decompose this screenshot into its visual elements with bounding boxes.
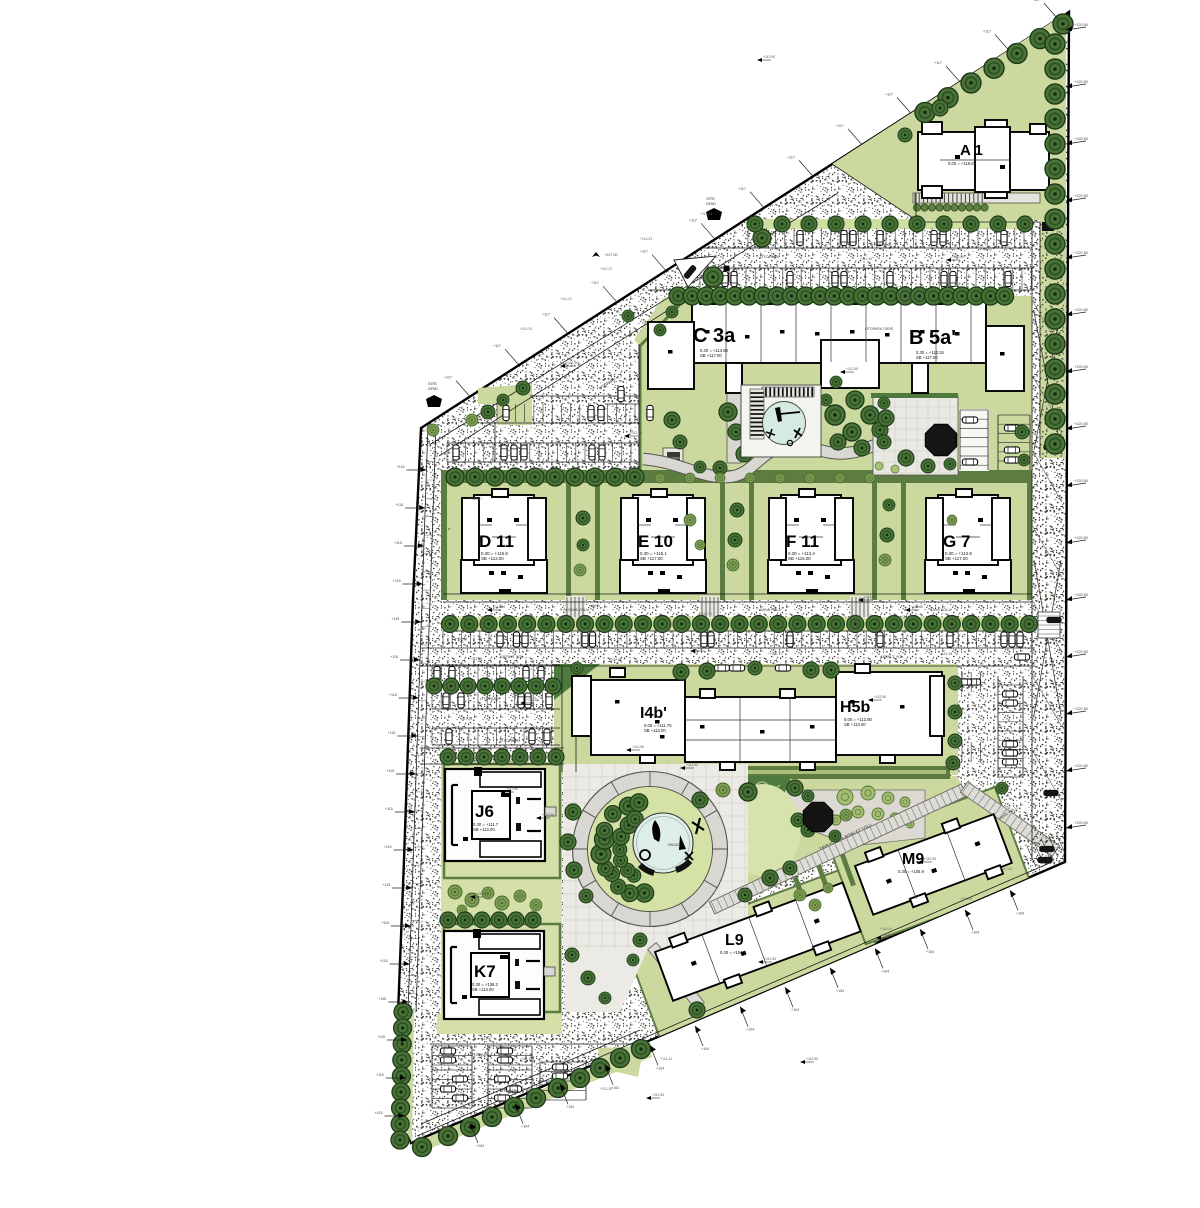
- svg-text:+120.50: +120.50: [1074, 422, 1088, 426]
- svg-text:+104: +104: [476, 1144, 484, 1148]
- svg-text:+115.41: +115.41: [880, 927, 892, 931]
- svg-text:+104: +104: [1016, 911, 1024, 915]
- svg-text:+112.50: +112.50: [630, 431, 642, 435]
- svg-text:+120.50: +120.50: [1074, 23, 1088, 27]
- svg-text:+112.50: +112.50: [493, 605, 505, 609]
- svg-text:+120.50: +120.50: [1074, 137, 1088, 141]
- svg-text:+115: +115: [382, 883, 390, 887]
- svg-text:SB +113.00: SB +113.00: [473, 827, 495, 832]
- svg-text:L9: L9: [725, 932, 744, 949]
- svg-text:+115: +115: [388, 731, 396, 735]
- svg-text:+114.24: +114.24: [700, 212, 712, 216]
- svg-text:+120.50: +120.50: [1074, 479, 1088, 483]
- svg-text:+117.00: +117.00: [604, 253, 618, 257]
- svg-text:+112.50: +112.50: [911, 605, 923, 609]
- svg-text:OTOPARK: OTOPARK: [470, 1052, 490, 1057]
- svg-text:YAYA YOLU: YAYA YOLU: [930, 607, 952, 612]
- svg-text:+112.50: +112.50: [882, 933, 894, 937]
- svg-text:+120.50: +120.50: [1074, 536, 1088, 540]
- svg-text:+111.45: +111.45: [980, 247, 992, 251]
- svg-text:+110.36: +110.36: [520, 757, 532, 761]
- svg-text:+115: +115: [386, 769, 394, 773]
- svg-text:+115.33: +115.33: [770, 652, 782, 656]
- svg-text:SB +112.00: SB +112.00: [481, 556, 504, 561]
- svg-text:SB +113.00: SB +113.00: [844, 722, 866, 727]
- svg-text:+120.50: +120.50: [1074, 650, 1088, 654]
- svg-text:+110.28: +110.28: [455, 637, 467, 641]
- svg-text:SB +117.00: SB +117.00: [945, 556, 968, 561]
- svg-text:+115: +115: [390, 655, 398, 659]
- svg-text:+104: +104: [521, 1125, 529, 1129]
- svg-text:ASFALT YOL: ASFALT YOL: [880, 654, 904, 659]
- svg-text:YAYA YOLU: YAYA YOLU: [760, 607, 782, 612]
- svg-text:SB +117.00: SB +117.00: [700, 353, 722, 358]
- svg-text:+112.50: +112.50: [566, 361, 578, 365]
- svg-text:F 11: F 11: [786, 532, 819, 551]
- svg-text:YAYA: YAYA: [590, 603, 600, 608]
- svg-text:+112.50: +112.50: [686, 763, 698, 767]
- svg-text:OTOPARK: OTOPARK: [500, 738, 520, 743]
- svg-text:OTOPARK: OTOPARK: [760, 254, 780, 259]
- svg-text:+117: +117: [787, 155, 795, 159]
- svg-text:+114.40: +114.40: [660, 1057, 672, 1061]
- svg-text:+117: +117: [738, 187, 746, 191]
- svg-text:+110.44: +110.44: [940, 247, 952, 251]
- svg-text:d: d: [448, 526, 450, 531]
- svg-text:M9: M9: [902, 851, 924, 868]
- svg-text:+112.50: +112.50: [526, 698, 538, 702]
- svg-text:SB +113.00: SB +113.00: [472, 987, 494, 992]
- svg-text:+112.46: +112.46: [860, 257, 872, 261]
- svg-text:+115.49: +115.49: [900, 297, 912, 301]
- svg-text:+117: +117: [983, 30, 991, 34]
- svg-text:+115: +115: [384, 845, 392, 849]
- svg-text:+112.50: +112.50: [874, 695, 886, 699]
- svg-text:+113.31: +113.31: [700, 612, 712, 616]
- svg-text:0.30 = +105.9: 0.30 = +105.9: [898, 869, 925, 874]
- svg-text:0.30 = +104.5: 0.30 = +104.5: [720, 950, 747, 955]
- svg-text:+115: +115: [380, 959, 388, 963]
- svg-text:+115.25: +115.25: [620, 467, 632, 471]
- svg-text:+120.50: +120.50: [1074, 707, 1088, 711]
- svg-text:+112.50: +112.50: [696, 646, 708, 650]
- svg-text:+120.50: +120.50: [1074, 593, 1088, 597]
- svg-text:+115: +115: [381, 921, 389, 925]
- svg-text:+112.30: +112.30: [900, 615, 912, 619]
- svg-text:+120.50: +120.50: [1074, 365, 1088, 369]
- svg-text:+120.50: +120.50: [1074, 821, 1088, 825]
- svg-text:+117: +117: [640, 250, 648, 254]
- svg-text:OTOPARK: OTOPARK: [870, 242, 890, 247]
- svg-text:ASFALT YOL: ASFALT YOL: [500, 654, 524, 659]
- svg-text:SB +113.00: SB +113.00: [644, 728, 666, 733]
- svg-text:SB +116.00: SB +116.00: [788, 556, 811, 561]
- svg-text:+115: +115: [397, 465, 405, 469]
- svg-text:+114.32: +114.32: [610, 657, 622, 661]
- svg-text:+110.20: +110.20: [520, 327, 532, 331]
- svg-text:I4b': I4b': [640, 705, 667, 722]
- svg-text:+117: +117: [689, 218, 697, 222]
- svg-text:K7: K7: [474, 962, 496, 981]
- svg-text:+104: +104: [836, 989, 844, 993]
- svg-text:A 1: A 1: [960, 142, 983, 159]
- svg-text:+117.27: +117.27: [470, 497, 482, 501]
- svg-text:G 7: G 7: [943, 532, 970, 551]
- svg-text:+117.43: +117.43: [1000, 867, 1012, 871]
- svg-text:+104: +104: [611, 1086, 619, 1090]
- svg-text:+104: +104: [656, 1066, 664, 1070]
- svg-text:+115: +115: [394, 541, 402, 545]
- svg-text:+115: +115: [376, 1073, 384, 1077]
- svg-text:+117: +117: [885, 92, 893, 96]
- svg-text:H5b: H5b: [840, 699, 870, 716]
- svg-text:+117.35: +117.35: [460, 717, 472, 721]
- svg-text:+112.50: +112.50: [846, 367, 858, 371]
- svg-text:+112.50: +112.50: [864, 595, 876, 599]
- svg-text:+104: +104: [971, 931, 979, 935]
- svg-text:+114.48: +114.48: [820, 297, 832, 301]
- svg-text:+117: +117: [444, 376, 452, 380]
- svg-text:+116.26: +116.26: [530, 467, 542, 471]
- svg-text:E 10: E 10: [638, 532, 673, 551]
- svg-text:+115: +115: [395, 503, 403, 507]
- svg-text:+112.22: +112.22: [600, 267, 612, 271]
- svg-text:D 11: D 11: [479, 532, 514, 551]
- svg-text:GRID: GRID: [428, 386, 438, 391]
- svg-text:+104: +104: [926, 950, 934, 954]
- svg-text:+112.50: +112.50: [652, 1093, 664, 1097]
- svg-text:OTOPARK: OTOPARK: [500, 1088, 520, 1093]
- svg-text:+113.23: +113.23: [640, 237, 652, 241]
- svg-text:+116.34: +116.34: [940, 652, 952, 656]
- svg-text:+104: +104: [701, 1047, 709, 1051]
- svg-text:+112.38: +112.38: [520, 1057, 532, 1061]
- svg-text:SB +117.00: SB +117.00: [640, 556, 663, 561]
- svg-text:+117: +117: [1032, 0, 1040, 2]
- svg-text:+117: +117: [591, 281, 599, 285]
- svg-text:+115: +115: [389, 693, 397, 697]
- svg-text:+120.50: +120.50: [1074, 251, 1088, 255]
- svg-text:+115: +115: [378, 997, 386, 1001]
- svg-text:+104: +104: [746, 1028, 754, 1032]
- svg-text:GRID: GRID: [706, 201, 716, 206]
- svg-text:OTOPARK: OTOPARK: [480, 696, 500, 701]
- svg-text:+104: +104: [566, 1105, 574, 1109]
- svg-text:+112.50: +112.50: [952, 255, 964, 259]
- svg-text:+120.50: +120.50: [1074, 80, 1088, 84]
- svg-text:+113.47: +113.47: [760, 297, 772, 301]
- svg-text:+116.42: +116.42: [960, 897, 972, 901]
- svg-text:+112.50: +112.50: [806, 1057, 818, 1061]
- svg-text:+117: +117: [836, 124, 844, 128]
- svg-text:7 m YAYA YOLU: 7 m YAYA YOLU: [560, 607, 589, 612]
- svg-text:+104: +104: [791, 1008, 799, 1012]
- svg-text:B 5a': B 5a': [909, 327, 956, 349]
- svg-text:+112.50: +112.50: [924, 857, 936, 861]
- svg-text:J6: J6: [475, 802, 494, 821]
- svg-text:+117: +117: [493, 344, 501, 348]
- svg-text:+112.50: +112.50: [763, 55, 775, 59]
- svg-text:+115: +115: [391, 617, 399, 621]
- svg-text:+117: +117: [934, 61, 942, 65]
- svg-text:C 3a: C 3a: [693, 325, 736, 347]
- svg-text:+115: +115: [385, 807, 393, 811]
- svg-text:+112.50: +112.50: [632, 745, 644, 749]
- svg-text:+115: +115: [375, 1111, 383, 1115]
- svg-text:+112.50: +112.50: [506, 787, 518, 791]
- svg-text:+120.50: +120.50: [1074, 194, 1088, 198]
- svg-text:+120.50: +120.50: [1074, 764, 1088, 768]
- svg-text:+120.50: +120.50: [1074, 308, 1088, 312]
- svg-text:HAVUZ: HAVUZ: [668, 843, 679, 847]
- svg-text:SB +117.00: SB +117.00: [916, 355, 938, 360]
- svg-text:+111.21: +111.21: [560, 297, 572, 301]
- svg-text:OTOPARK GIRIS: OTOPARK GIRIS: [865, 327, 894, 331]
- svg-text:0.00 = +116.87: 0.00 = +116.87: [948, 161, 977, 166]
- svg-text:+115: +115: [393, 579, 401, 583]
- svg-text:+111.29: +111.29: [470, 657, 482, 661]
- svg-text:+112.50: +112.50: [542, 813, 554, 817]
- svg-text:+111.37: +111.37: [480, 1037, 492, 1041]
- svg-text:+112.50: +112.50: [476, 892, 488, 896]
- svg-text:+104: +104: [881, 969, 889, 973]
- svg-text:+112.50: +112.50: [764, 957, 776, 961]
- svg-text:+115: +115: [377, 1035, 385, 1039]
- svg-text:+117: +117: [542, 313, 550, 317]
- svg-text:+113.39: +113.39: [600, 1087, 612, 1091]
